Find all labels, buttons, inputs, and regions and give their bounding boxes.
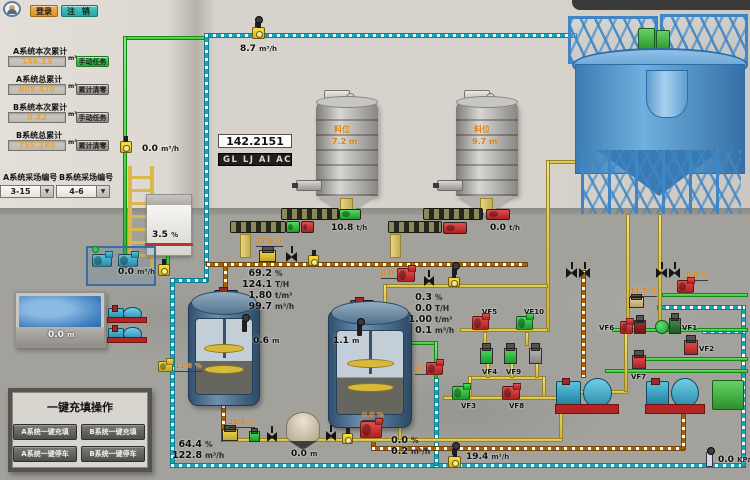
- vf6-valve[interactable]: [620, 321, 633, 334]
- b-site-selector-label: B系统采场编号: [59, 172, 113, 183]
- hopper-level-reading: 0.0 m: [291, 449, 317, 459]
- silo2-rate-reading: 0.0 t/h: [490, 223, 520, 233]
- underflow-valve-icon[interactable]: [579, 266, 590, 279]
- skid-flow-reading: 0.0 m³/h: [118, 267, 155, 277]
- tank2-level-reading: 1.1 m: [333, 336, 359, 346]
- tank1-level-sensor-icon[interactable]: [242, 320, 247, 332]
- skid-run-indicator: [92, 246, 99, 253]
- a-site-selector[interactable]: 3-15 ▼: [0, 185, 54, 198]
- feed-control-valve[interactable]: [259, 250, 276, 262]
- pool-pump-1[interactable]: [108, 306, 144, 323]
- silo2-conveyor-motor-upper[interactable]: [486, 209, 510, 220]
- dosing-pump-2[interactable]: [118, 254, 138, 267]
- scada-screen: 登录 注 销 A系统本次累计 146.15 m³ 手动任务 A系统总累计 808…: [0, 0, 750, 480]
- vf4-label: VF4: [482, 368, 497, 376]
- silo1-conveyor-motor-lower-1[interactable]: [286, 221, 300, 233]
- pipe-teal-connector: [170, 278, 208, 283]
- filling-pump-b[interactable]: [646, 376, 702, 414]
- vf3-valve[interactable]: [452, 386, 470, 400]
- silo1-injector-icon: [296, 180, 322, 191]
- drain-measurements: 0.0% 0.2m³/h: [386, 432, 448, 456]
- skid-flow-meter-icon[interactable]: [158, 264, 170, 276]
- vf6-label: VF6: [599, 324, 614, 332]
- b-grand-total-value[interactable]: 765.280: [8, 140, 66, 151]
- manual-valve-icon[interactable]: [424, 274, 434, 287]
- a-one-key-fill-button[interactable]: A系统一键充填: [13, 424, 77, 440]
- b-site-value: 4-6: [57, 187, 96, 196]
- b-current-total-value[interactable]: 0.42: [8, 112, 66, 123]
- line-b-density-block: 64.4% 122.8m³/h: [172, 436, 234, 460]
- cement-silo-1: [316, 100, 378, 196]
- silo2-level-label: 料位: [474, 124, 490, 136]
- b-reset-total-button[interactable]: 累计清零: [76, 140, 109, 151]
- vf1-ball-valve[interactable]: [655, 320, 669, 334]
- silo1-support-post: [240, 234, 251, 258]
- pipe-yellow-manifold-v5: [535, 362, 539, 378]
- pool-level-reading: 0.0 m: [48, 330, 74, 340]
- pipe-green-top-horizontal: [123, 36, 206, 40]
- thickener-legs: [581, 150, 741, 214]
- pipe-green-right-1: [662, 293, 748, 297]
- vf2-valve[interactable]: [684, 340, 698, 355]
- manual-valve-icon[interactable]: [267, 430, 277, 443]
- vf3-label: VF3: [461, 402, 476, 410]
- pipe-green-right-3: [642, 357, 748, 361]
- tank2-discharge-pump[interactable]: [426, 362, 443, 375]
- vf5-valve[interactable]: [472, 316, 489, 330]
- a-site-value: 3-15: [1, 187, 40, 196]
- vf7-label: VF7: [631, 373, 646, 381]
- a-one-key-stop-button[interactable]: A系统一键停车: [13, 446, 77, 462]
- status-code-display: GL LJ AI ACC: [218, 153, 292, 166]
- pressure-sensor-icon[interactable]: [706, 452, 713, 467]
- b-site-selector[interactable]: 4-6 ▼: [56, 185, 110, 198]
- pipe-yellow-tank2-line: [383, 284, 548, 288]
- silo1-level-value: 7.2 m: [332, 137, 357, 147]
- pipe-yellow-pump-drop: [624, 330, 628, 392]
- a-current-total-value[interactable]: 146.15: [8, 56, 66, 67]
- thickener-feedwell: [646, 70, 688, 118]
- line-b-feed-pump[interactable]: [397, 268, 415, 282]
- silo2-injector-icon: [437, 180, 463, 191]
- left-flow-reading: 0.0 m³/h: [142, 144, 179, 154]
- silo1-screw-conveyor-lower[interactable]: [230, 221, 286, 233]
- logout-button[interactable]: 注 销: [61, 5, 98, 17]
- silo1-conveyor-motor-lower-2[interactable]: [301, 221, 314, 233]
- underflow-valve-icon[interactable]: [669, 266, 680, 279]
- sampling-valve[interactable]: [249, 431, 260, 442]
- dosing-pump-1[interactable]: [92, 254, 112, 267]
- pump-valve-open-reading: 11.8 %: [175, 362, 202, 372]
- login-button[interactable]: 登录: [30, 5, 58, 17]
- pipe-yellow-manifold-v2: [525, 332, 529, 346]
- vf10-valve[interactable]: [516, 316, 533, 330]
- transfer-hopper: [286, 412, 320, 442]
- vf4-valve[interactable]: [480, 348, 493, 364]
- a-grand-total-value[interactable]: 808.470: [8, 84, 66, 95]
- silo1-conveyor-motor-upper[interactable]: [339, 209, 361, 220]
- line-a-measurements: 69.2% 124.1T/H 1.80t/m³ 99.7m³/h: [242, 265, 306, 311]
- pipe-slurry-thickener-underflow: [581, 270, 586, 378]
- return-flow-reading: 19.4 m³/h: [466, 452, 509, 462]
- b-one-key-fill-button[interactable]: B系统一键充填: [81, 424, 145, 440]
- pipe-teal-left-vertical: [204, 33, 209, 282]
- vf1-label: VF1: [682, 324, 697, 332]
- a-manual-task-button[interactable]: 手动任务: [76, 56, 109, 67]
- pressure-reading: 0.0 KPa: [718, 455, 750, 465]
- totalizer-display: 142.2151: [218, 134, 292, 148]
- vf7-valve[interactable]: [632, 355, 646, 369]
- top-flow-meter-icon[interactable]: [252, 27, 265, 39]
- user-avatar-icon[interactable]: [3, 1, 21, 17]
- pipe-yellow-drop-b: [542, 376, 546, 398]
- tank-concentration-reading: 3.5 %: [152, 230, 178, 240]
- vf9-label: VF9: [506, 368, 521, 376]
- line-b-flow-meter-icon[interactable]: [448, 277, 460, 287]
- manual-valve-icon[interactable]: [286, 250, 297, 263]
- a-site-selector-label: A系统采场编号: [3, 172, 57, 183]
- silo2-conveyor-motor-lower[interactable]: [443, 222, 467, 234]
- bottom-transfer-pump[interactable]: [360, 421, 382, 438]
- silo2-screw-conveyor-lower[interactable]: [388, 221, 442, 233]
- vf6-gate-valve[interactable]: [634, 320, 646, 334]
- underflow-valve-icon[interactable]: [656, 266, 667, 279]
- pool-pump-2[interactable]: [108, 326, 144, 343]
- silo2-level-value: 9.7 m: [472, 137, 497, 147]
- top-flow-reading: 8.7 m³/h: [240, 44, 277, 54]
- manual-valve-icon[interactable]: [326, 429, 336, 442]
- flow-meter-icon[interactable]: [120, 141, 132, 153]
- feed-flow-meter-icon[interactable]: [308, 255, 319, 266]
- one-key-panel-title: 一键充填操作: [12, 399, 148, 415]
- tank2-dome: [331, 301, 409, 325]
- a-reset-total-button[interactable]: 累计清零: [76, 84, 109, 95]
- return-flow-meter-icon[interactable]: [448, 456, 461, 468]
- pipe-yellow-right-drop: [546, 160, 550, 332]
- silo2-support-post: [390, 234, 401, 258]
- silo2-screw-conveyor-upper[interactable]: [423, 208, 483, 220]
- filling-pump-a[interactable]: [556, 376, 616, 414]
- b-manual-task-button[interactable]: 手动任务: [76, 112, 109, 123]
- b-one-key-stop-button[interactable]: B系统一键停车: [81, 446, 145, 462]
- cement-silo-2: [456, 100, 518, 196]
- tank-top-band: [147, 195, 191, 205]
- vf9-valve[interactable]: [504, 348, 517, 364]
- top-right-bar: [572, 0, 750, 10]
- silo1-rate-reading: 10.8 t/h: [331, 223, 367, 233]
- spare-valve[interactable]: [529, 348, 542, 364]
- chevron-down-icon[interactable]: ▼: [40, 186, 53, 197]
- underflow-valve-icon[interactable]: [566, 266, 577, 279]
- tank1-level-reading: 0.6 m: [253, 336, 279, 346]
- line-b-measurements: 0.3% 0.0T/H 1.00t/m³ 0.1m³/h: [402, 289, 466, 335]
- pipe-teal-right-upper: [657, 305, 743, 310]
- chevron-down-icon[interactable]: ▼: [96, 186, 109, 197]
- vf2-label: VF2: [699, 345, 714, 353]
- pipe-yellow-thickener-leg-a: [626, 214, 630, 330]
- bottom-flow-meter-icon[interactable]: [342, 433, 353, 444]
- tank1-side-pump[interactable]: [158, 361, 173, 372]
- vf8-valve[interactable]: [502, 386, 520, 400]
- silo1-level-label: 料位: [334, 124, 350, 136]
- vf1-gate-valve[interactable]: [669, 318, 681, 334]
- right-circulation-pump[interactable]: [677, 280, 694, 293]
- pool-water: [19, 296, 101, 328]
- tank2-level-sensor-icon[interactable]: [357, 324, 362, 336]
- vf8-label: VF8: [509, 402, 524, 410]
- filling-pump-motor: [712, 380, 744, 410]
- right-control-valve[interactable]: [629, 297, 644, 308]
- silo1-screw-conveyor-upper[interactable]: [281, 208, 339, 220]
